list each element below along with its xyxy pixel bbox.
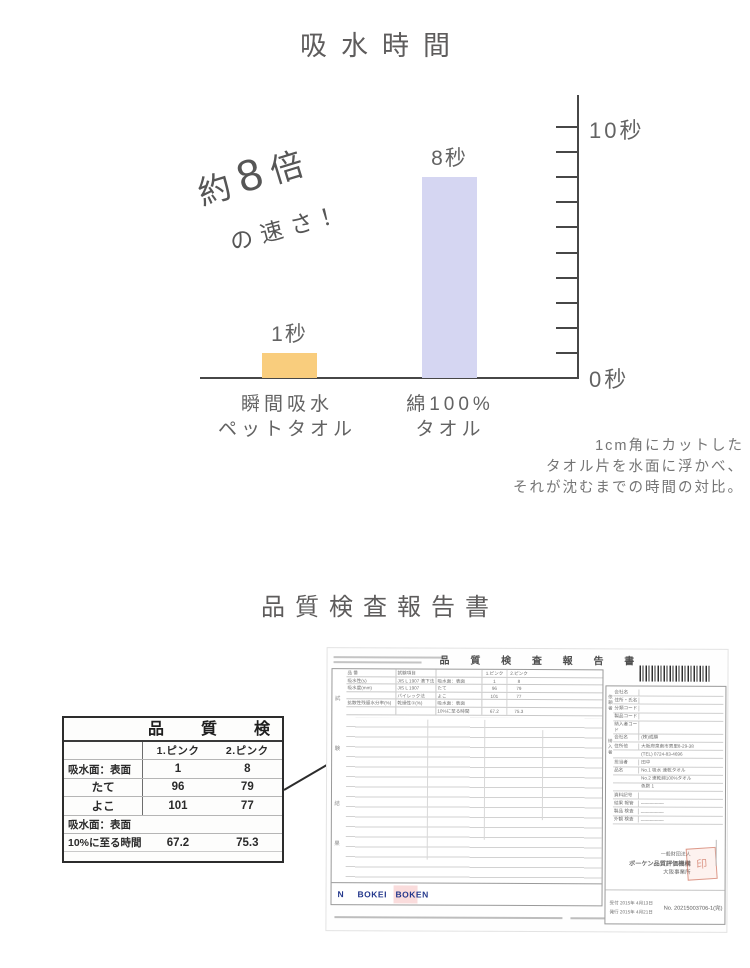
axis-tick [556,302,578,304]
caption-line1: 1cm角にカットした [513,436,744,457]
caption-line3: それが沈むまでの時間の対比。 [513,478,744,499]
axis-tick [556,151,578,153]
scan-table-cell: 77 [506,693,530,700]
scan-table-cell: 10%に至る時間 [436,708,482,715]
scan-info-label: 製品コード [613,714,639,720]
scan-doc-title: 品 質 検 査 報 告 書 [440,652,644,668]
excerpt-col-header-1: 1.ピンク [143,743,212,758]
scan-table-cell: 79 [506,685,530,692]
excerpt-row-10pct-time: 10%に至る時間 67.2 75.3 [64,834,282,852]
scan-right-divider [606,889,725,890]
axis-tick [556,201,578,203]
scan-margin-label: 験 [335,744,341,752]
axis-tick [556,327,578,329]
excerpt-row-value2: 77 [213,800,282,812]
scan-info-row: 外観 検査――――― [613,816,723,825]
bar-pet-towel: 1秒 [262,353,317,378]
section-title: 品質検査報告書 [0,587,750,622]
scan-info-value: (TEL) 0724-83-4696 [639,752,723,757]
excerpt-row-label: よこ [64,797,143,814]
bokei-logo: BOKEI [358,889,387,899]
scan-info-label: 担当者 [613,759,639,765]
scan-main-table: 品 番試験項目1.ピンク2.ピンク吸水性(s)JIS L 1907 滴下法吸水面… [330,668,603,906]
chart-caption: 1cm角にカットした タオル片を水面に浮かべ、 それが沈むまでの時間の対比。 [513,436,744,499]
scan-info-label: 会社名 [613,735,639,741]
scan-table-row: 10%に至る時間67.275.3 [346,707,602,716]
scan-info-row: 納入者コード [613,721,723,734]
scan-table-cell: 101 [482,693,506,700]
excerpt-row-label: たて [64,779,143,796]
scan-info-value: No.2 速乾綿100%タオル [639,776,723,782]
scan-table-cell: 吸水性(s) [346,677,396,684]
scan-table-cell [346,692,396,699]
scan-table-cell: 8 [506,678,530,685]
scan-table-cell: 75.3 [506,708,530,715]
scan-table-cell: 吸水度(mm) [346,684,396,691]
category-pet-line2: ペットタオル [192,417,382,442]
excerpt-row-value2: 8 [213,763,282,775]
axis-tick [556,126,578,128]
scan-table-cell: 乾燥性①(%) [396,700,436,707]
excerpt-col-header-spacer [64,742,143,759]
axis-tick [556,226,578,228]
scan-table-cell: JIS L 1907 [396,685,436,692]
excerpt-row-value1: 67.2 [143,837,212,849]
scan-table-cell: 吸水面：表面 [436,677,482,684]
axis-tick [556,176,578,178]
scan-table-cell: 品 番 [346,669,396,676]
scan-ruled-lines [346,717,603,883]
axis-tick [556,277,578,279]
scan-mini-table: 品 番試験項目1.ピンク2.ピンク吸水性(s)JIS L 1907 滴下法吸水面… [346,669,602,716]
excerpt-row-surface: 吸水面：表面 1 8 [64,760,282,778]
excerpt-row-value2: 79 [213,781,282,793]
bar-pet-towel-value: 1秒 [262,318,317,348]
scan-table-cell [436,670,482,677]
excerpt-col-header-2: 2.ピンク [213,743,282,758]
excerpt-table: 品質検 1.ピンク 2.ピンク 吸水面：表面 1 8 たて 96 79 よこ 1… [62,716,284,863]
scan-info-label: 結果 報管 [613,800,639,806]
y-axis-label-10s: 10秒 [589,113,644,145]
scan-table-cell [482,700,506,707]
axis-tick [556,352,578,354]
scan-info-label: 品名 [613,767,639,773]
scan-table-cell: 吸水面：表面 [436,700,482,707]
scan-table-cell: バイレック法 [396,692,436,699]
scan-info-label: 製品 検査 [613,808,639,814]
excerpt-row-value2: 75.3 [213,837,282,849]
scan-margin-label: 試 [335,694,341,702]
issue-date: 発行 2015年 4月21日 [609,908,652,916]
boken-logo-n: N [338,889,345,899]
scan-margin-label: 果 [334,839,340,847]
scan-right-column: 依頼者 納入者 会社名住所・氏名分類コード製品コード納入者コード会社名(株)成願… [604,685,726,925]
category-pet-line1: 瞬間吸水 [192,392,382,417]
excerpt-row-label: 吸水面：表面 [64,760,143,777]
excerpt-table-header: 品質検 [64,718,282,742]
scan-info-label: 会社名 [613,689,639,695]
scan-info-value: ――――― [639,809,723,814]
scan-microtext-line [334,661,422,663]
category-label-pet-towel: 瞬間吸水 ペットタオル [192,392,382,442]
scan-info-value: 色数 1 [639,784,723,790]
scan-info-label: 納入者コード [613,721,639,733]
barcode [639,665,709,681]
scan-table-cell: 1 [482,677,506,684]
scan-info-label: 資料記号 [613,792,639,798]
category-label-cotton-towel: 綿100% タオル [355,392,545,442]
receipt-date: 受付 2015年 4月13日 [609,900,652,908]
scan-table-cell: 試験項目 [396,669,436,676]
excerpt-row-label: 10%に至る時間 [64,834,143,851]
scan-info-label: 住所・氏名 [613,697,639,703]
scan-logo-strip: N BOKEI BOKEN [332,882,602,905]
excerpt-row-horizontal: よこ 101 77 [64,797,282,815]
scan-info-value: ――――― [639,801,723,806]
scan-microtext-line [334,656,446,658]
excerpt-row-surface2: 吸水面：表面 [64,816,282,834]
scan-table-cell: 1.ピンク [482,670,506,677]
org-block: 一般財団法人 ボーケン品質評価機構 大阪事業所 [629,852,691,878]
scan-table-cell: JIS L 1907 滴下法 [396,677,436,684]
scan-table-cell: たて [436,685,482,692]
inspection-report-scan: 品 質 検 査 報 告 書 品 番試験項目1.ピンク2.ピンク吸水性(s)JIS… [325,647,728,933]
excerpt-row-value1: 96 [143,781,212,793]
excerpt-row-value1: 101 [143,800,212,812]
annotation-8x: 約8倍 [191,134,318,216]
chart-y-axis-line [577,95,579,379]
scan-table-cell: 96 [482,685,506,692]
scan-margin-label: 結 [334,799,340,807]
excerpt-row-value1: 1 [143,763,212,775]
excerpt-row-label: 吸水面：表面 [64,816,143,833]
annotation-suffix: 倍 [266,142,317,190]
scan-table-cell: 67.2 [482,708,506,715]
red-seal-stamp: 印 [686,847,718,881]
caption-line2: タオル片を水面に浮かべ、 [513,457,744,478]
y-axis-label-0s: 0秒 [589,362,629,394]
scan-info-value: 田中 [639,759,723,765]
org-line2: ボーケン品質評価機構 [629,859,691,869]
scan-table-cell [396,707,436,714]
scan-info-label: 分類コード [613,705,639,711]
scan-table-cell [506,700,530,707]
scan-table-cell: 2.ピンク [506,670,530,677]
bar-cotton-towel-value: 8秒 [422,142,477,172]
scan-table-cell: よこ [436,692,482,699]
axis-tick [556,252,578,254]
issue-stamp-cells [716,840,725,866]
scan-info-value: No.1 吸水 速乾タオル [639,768,723,774]
page-title: 吸水時間 [0,24,750,63]
scan-info-label: 外観 検査 [613,817,639,823]
category-cotton-line1: 綿100% [355,392,545,417]
report-number: No. 20215003706-1(完) [664,904,723,912]
scan-info-value: ――――― [639,817,723,822]
scan-table-cell [346,707,396,714]
scan-right-rows: 会社名住所・氏名分類コード製品コード納入者コード会社名(株)成願住所他大阪府泉南… [613,688,724,824]
scan-info-value: (株)成願 [639,735,723,741]
scan-info-value: 大阪府泉南市男里8-29-38 [639,743,723,749]
scan-table-cell: 拡散性残留水分率(%) [346,700,396,707]
boken-logo: BOKEN [396,889,429,899]
dates-block: 受付 2015年 4月13日 発行 2015年 4月21日 [609,900,652,917]
chart-baseline [200,377,579,379]
excerpt-col-header-row: 1.ピンク 2.ピンク [64,742,282,760]
scan-fineprint-line [334,916,562,919]
excerpt-row-vertical: たて 96 79 [64,779,282,797]
bar-cotton-towel: 8秒 [422,177,477,378]
org-line3: 大阪事業所 [629,869,691,878]
scan-info-label: 住所他 [613,743,639,749]
